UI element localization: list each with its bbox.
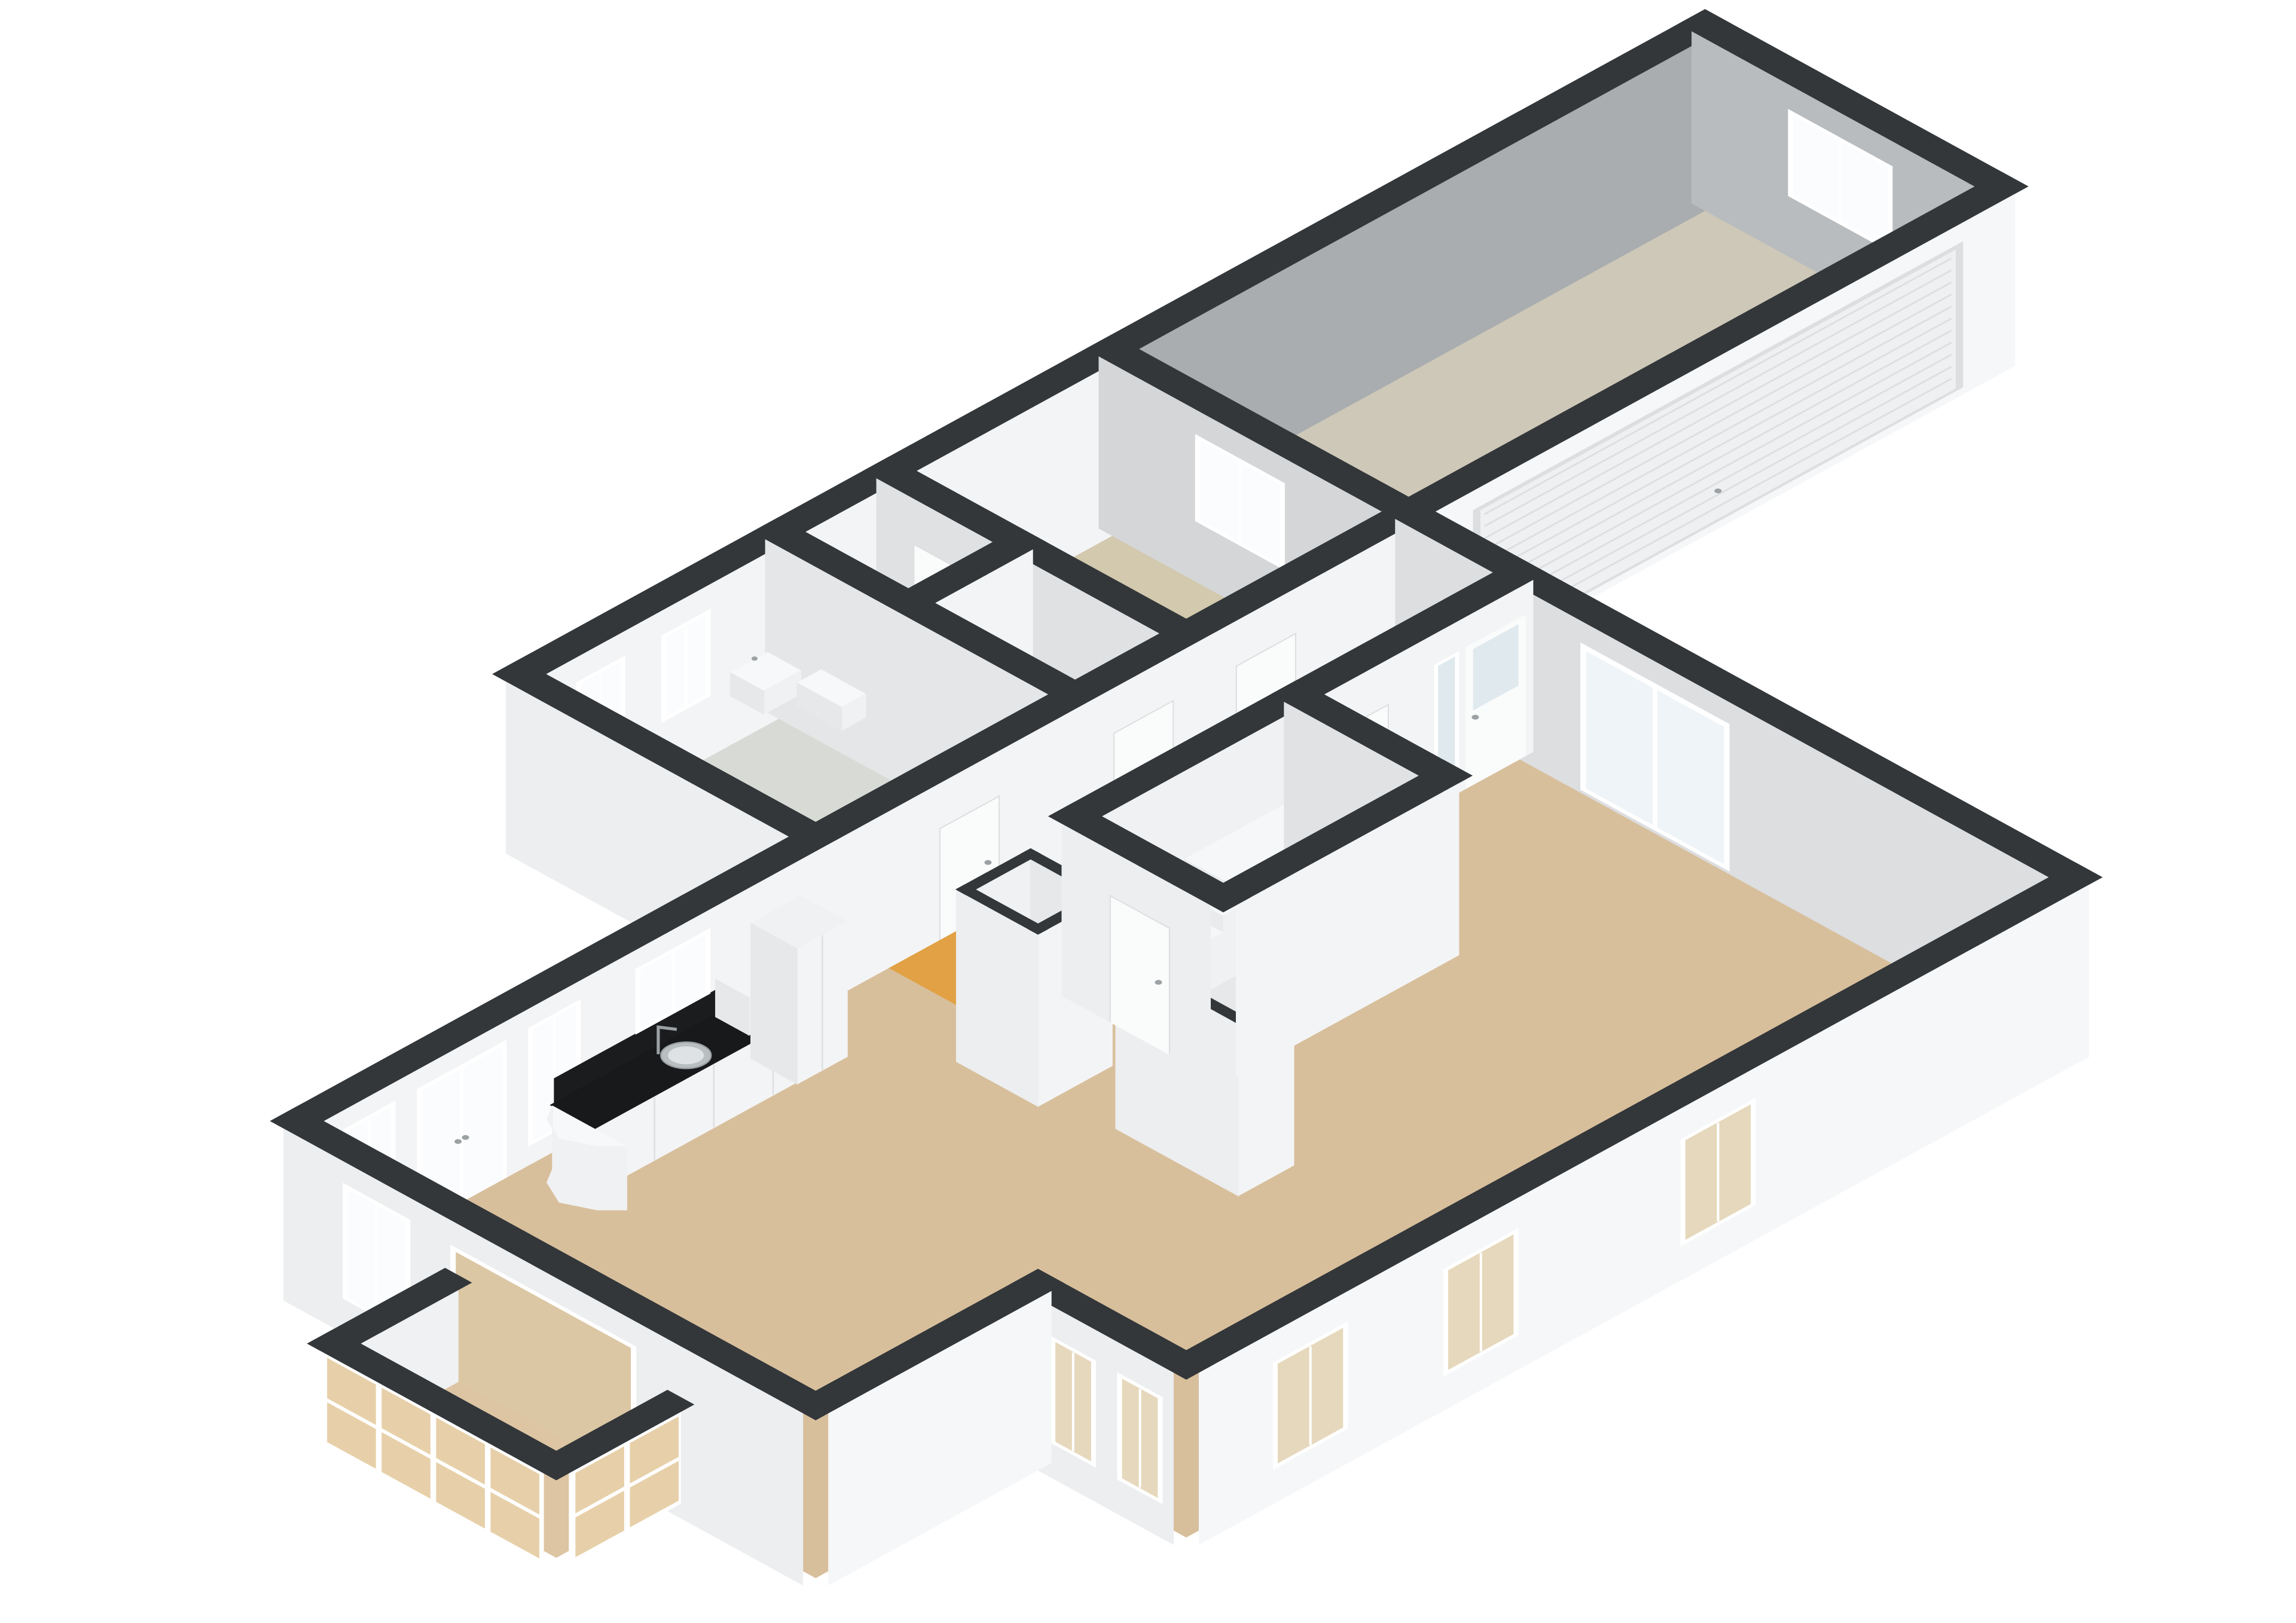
entrance-door-handle-icon: [1471, 715, 1479, 720]
basin-tap-icon: [752, 656, 758, 661]
tall-cabinet-side: [751, 924, 797, 1084]
kitchen-sink-basin-icon: [668, 1046, 704, 1064]
roller-door-handle-icon: [1714, 488, 1721, 493]
floorplan-viewport[interactable]: [0, 0, 2296, 1623]
door-handle-icon: [1155, 980, 1162, 985]
floorplan-3d-render: [0, 0, 2296, 1623]
entrance-sidelight-pane: [1439, 658, 1455, 775]
french-door-handle-icon: [462, 1135, 469, 1140]
french-door-handle-icon: [454, 1139, 462, 1144]
door-handle-icon: [984, 860, 991, 865]
